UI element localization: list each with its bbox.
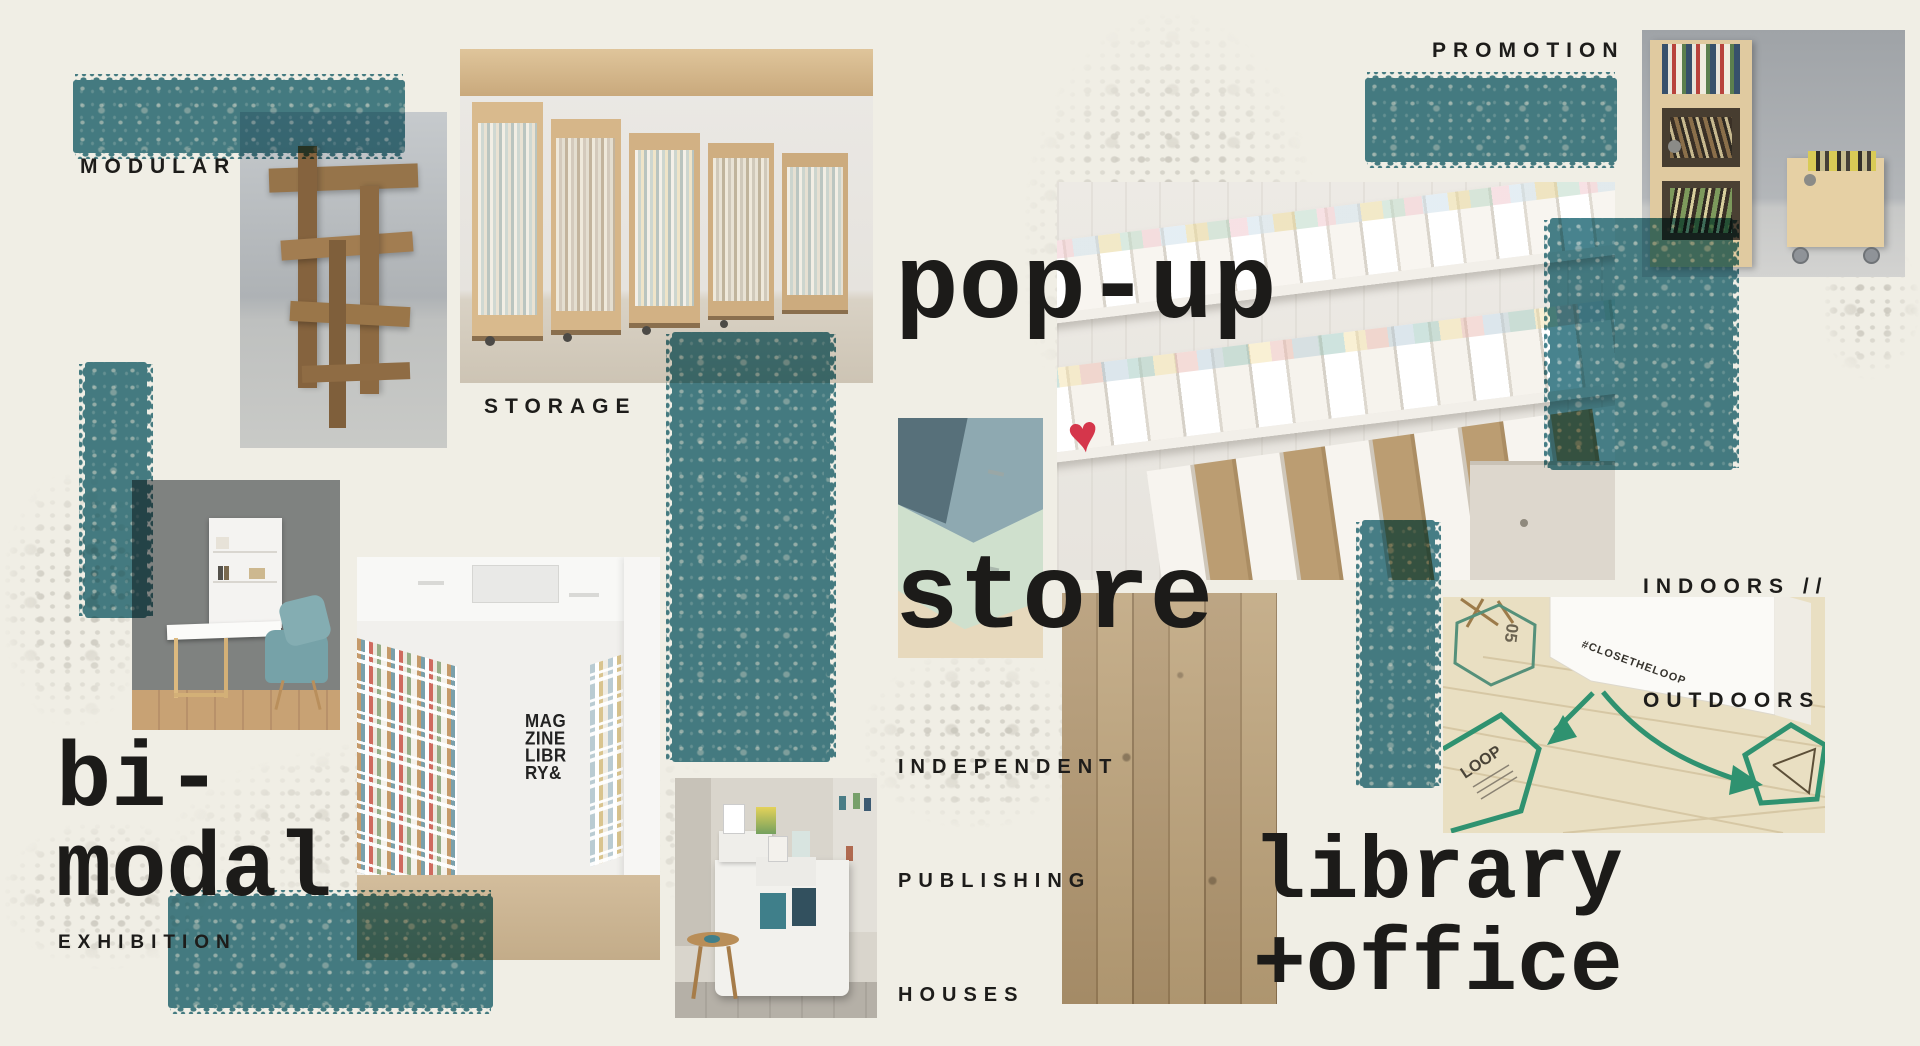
left-magazine-wall <box>357 638 457 900</box>
teal-swatch-promotion <box>1365 78 1617 162</box>
photo-cardboard-display <box>240 112 447 448</box>
teal-swatch-narrow-column <box>1362 520 1435 788</box>
label-indoors-line2: OUTDOORS <box>1643 682 1829 720</box>
label-modular: MODULAR <box>80 148 236 186</box>
caster <box>563 333 572 342</box>
teal-swatch-left-column <box>85 362 147 618</box>
title-bimodal-line2: modal <box>56 825 332 917</box>
photo-magazine-cart <box>675 778 877 1018</box>
shelf-unit <box>782 153 848 314</box>
magazine-wall-sign: MAG ZINE LIBR RY& <box>525 713 567 783</box>
ceiling-light <box>569 593 599 597</box>
caster <box>720 320 728 328</box>
caster <box>485 336 495 346</box>
desk-leg <box>224 638 228 698</box>
label-promotion: PROMOTION <box>1432 32 1625 70</box>
magazine <box>760 893 786 929</box>
magazine <box>792 888 816 926</box>
label-independent-publishing: INDEPENDENT PUBLISHING HOUSES <box>898 672 1118 1046</box>
teal-swatch-center-column <box>672 332 830 762</box>
magazine <box>723 804 745 834</box>
right-wall-shelf <box>590 654 623 866</box>
desk-leg-bar <box>174 693 228 697</box>
ceiling-light <box>418 581 444 585</box>
title-popup-line2: store <box>895 546 1277 652</box>
cardboard-plank <box>269 163 419 192</box>
caster <box>1863 247 1880 264</box>
wood-top-beam <box>460 49 873 96</box>
label-storage: STORAGE <box>484 388 636 426</box>
label-indoors-line1: INDOORS // <box>1643 568 1829 606</box>
title-popup-line1: pop-up <box>895 236 1277 342</box>
teal-swatch-right-column <box>1550 218 1733 470</box>
finger-hole <box>1804 174 1816 186</box>
magazine <box>768 836 788 862</box>
teal-swatch-topleft <box>73 80 405 153</box>
shelf-unit <box>708 143 774 321</box>
label-independent-line1: INDEPENDENT <box>898 748 1118 786</box>
wood-floor <box>132 690 340 730</box>
label-exhibition: EXHIBITION <box>58 924 237 962</box>
moodboard: ♥ MAG ZINE <box>0 0 1920 1046</box>
shelf-unit <box>629 133 699 328</box>
floor-number: 05 <box>1501 623 1522 644</box>
cardboard-plank <box>329 240 346 428</box>
stool-seat <box>687 932 739 947</box>
ac-unit <box>472 565 559 603</box>
cardboard-plank <box>298 146 317 388</box>
title-library-line2: +office <box>1253 923 1623 1011</box>
magazine <box>756 807 776 834</box>
shelf-unit <box>472 102 542 341</box>
photo-fold-down-desk <box>132 480 340 730</box>
wall-shelf <box>209 518 282 628</box>
desk-leg <box>174 638 178 698</box>
label-indoors-outdoors: INDOORS // OUTDOORS <box>1643 492 1829 796</box>
magazine <box>792 831 810 857</box>
rolling-box <box>1787 158 1884 247</box>
cardboard-plank <box>302 362 410 383</box>
back-shelf <box>675 778 711 946</box>
shelf-unit <box>551 119 621 334</box>
label-independent-line3: HOUSES <box>898 976 1118 1014</box>
cabinet <box>1470 461 1615 580</box>
title-bimodal-line1: bi- <box>56 735 222 827</box>
label-independent-line2: PUBLISHING <box>898 862 1118 900</box>
caster <box>1792 247 1809 264</box>
caster <box>642 326 651 335</box>
title-library-line1: library <box>1253 831 1623 919</box>
